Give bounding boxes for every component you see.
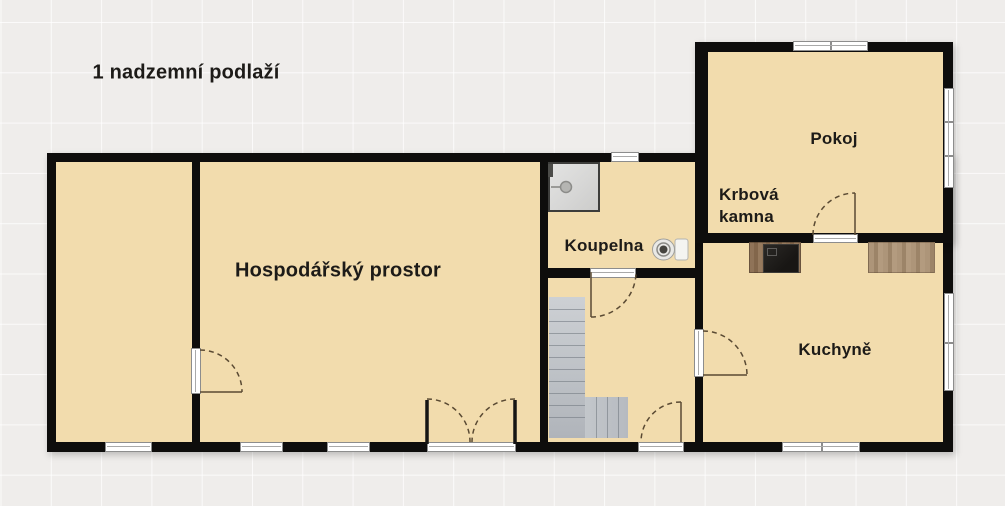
window-koupelna-top <box>611 152 639 162</box>
door-panel-entrance-hall <box>638 442 684 452</box>
annotation-krbova-kamna: Krbová kamna <box>719 184 789 228</box>
floorplan-canvas: 1 nadzemní podlaží <box>0 0 1005 506</box>
staircase-landing <box>585 397 628 438</box>
staircase-icon <box>549 297 585 438</box>
window-hospodarsky-bottom-2 <box>327 442 370 452</box>
door-panel-double-entrance <box>427 442 516 452</box>
door-panel-koupelna <box>590 268 636 278</box>
room-label-koupelna: Koupelna <box>564 236 643 256</box>
window-side-room-bottom <box>105 442 152 452</box>
kitchen-counter-icon <box>868 242 935 273</box>
window-kuchyne-bottom <box>782 442 860 452</box>
door-panel-pokoj <box>813 234 858 243</box>
stove-icon <box>763 244 799 273</box>
window-kuchyne-right <box>944 293 954 391</box>
window-pokoj-top <box>793 41 868 51</box>
window-pokoj-right <box>944 88 954 188</box>
room-label-hospodarsky: Hospodářský prostor <box>235 260 441 283</box>
window-hospodarsky-bottom-1 <box>240 442 283 452</box>
room-label-kuchyne: Kuchyně <box>798 340 871 360</box>
page-title: 1 nadzemní podlaží <box>93 62 280 85</box>
room-side-room <box>56 162 192 442</box>
door-panel-side-room <box>191 348 201 394</box>
room-label-pokoj: Pokoj <box>810 129 857 149</box>
shower-icon <box>548 162 600 212</box>
room-hospodarsky-prostor <box>200 162 540 442</box>
door-panel-kuchyne <box>694 329 704 377</box>
